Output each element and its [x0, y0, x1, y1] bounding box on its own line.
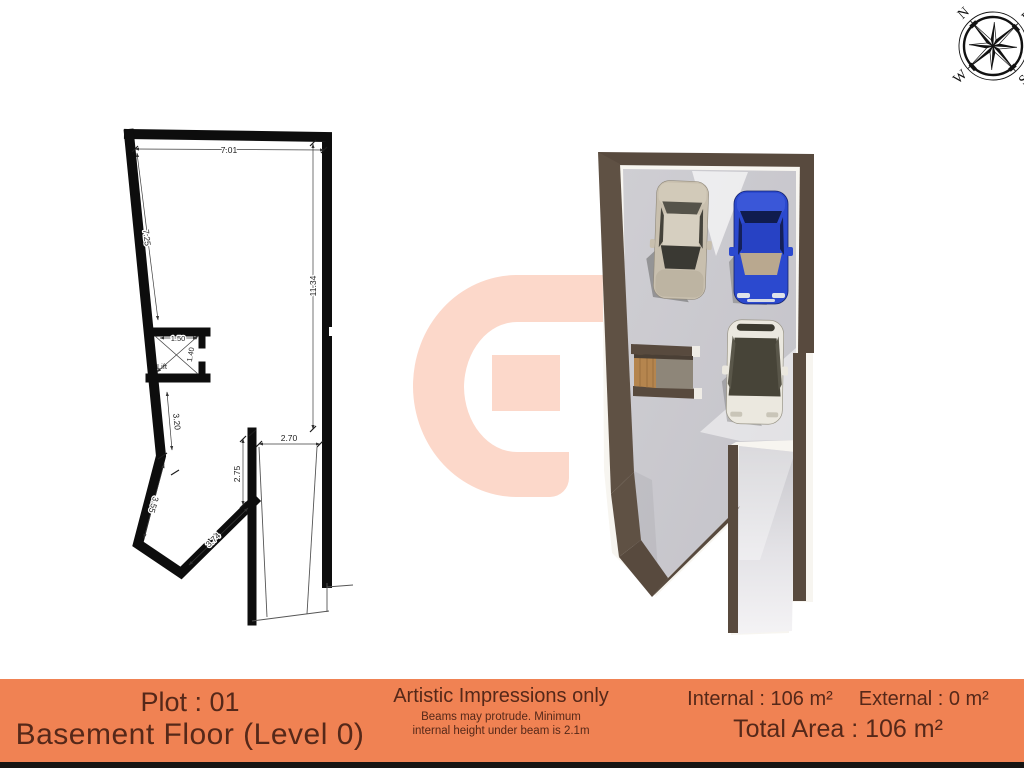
dim-top: 7.01	[221, 145, 238, 155]
car-rear-window	[662, 201, 702, 214]
wall-right-lower	[793, 353, 806, 601]
dim-ramp-h: 2.75	[232, 465, 242, 482]
plan-sheet: 7.01 7.25 11.34 1.50 1.40 Lift 3.20 3.55…	[0, 0, 1024, 768]
dim-lift-depth: 1.40	[185, 347, 196, 363]
compass-letter-e: E	[1019, 9, 1024, 26]
ramp-lines-2d	[252, 447, 353, 621]
compass-letter-s: S	[1016, 72, 1024, 88]
car-headlight	[737, 293, 750, 298]
compass-rose: N E S W	[921, 0, 1024, 121]
wall-right-upper	[798, 154, 814, 353]
dim-lift-width: 1.50	[171, 334, 186, 343]
lift-wall-cap-bottom	[694, 388, 702, 399]
car-white	[721, 319, 789, 426]
dim-wall-a: 3.20	[171, 413, 183, 431]
compass-letter-w: W	[951, 67, 971, 88]
lift-wall-cap-top	[692, 346, 700, 357]
car-headlight	[730, 412, 742, 417]
car-mirror	[707, 241, 712, 250]
car-glass-roof	[729, 338, 782, 397]
car-windshield	[740, 253, 782, 275]
dimension-lines	[135, 144, 324, 565]
car-roof	[742, 223, 780, 253]
floor-plan-2d: 7.01 7.25 11.34 1.50 1.40 Lift 3.20 3.55…	[129, 134, 353, 621]
lift-label: Lift	[157, 362, 168, 371]
car-mirror	[729, 247, 735, 256]
car-mirror	[782, 366, 788, 375]
lift-inner-floor	[656, 355, 693, 389]
car-rear-window	[740, 211, 782, 223]
car-windshield	[660, 245, 701, 269]
car-headlight	[772, 293, 785, 298]
car-roof	[663, 213, 700, 246]
render-3d	[598, 152, 814, 635]
dim-ramp-w: 2.70	[281, 433, 298, 443]
plan-walls	[129, 134, 327, 621]
car-rear-window	[737, 324, 775, 332]
wall-ramp-left	[728, 445, 738, 633]
wall-notch	[329, 327, 333, 336]
compass-letter-n: N	[955, 5, 973, 23]
dim-left: 7.25	[141, 229, 153, 247]
lift-3d	[631, 344, 702, 399]
car-grille	[747, 299, 775, 302]
car-headlight	[766, 412, 778, 417]
car-blue	[729, 191, 793, 305]
wall-top	[598, 152, 814, 167]
car-mirror	[787, 247, 793, 256]
car-mirror	[722, 365, 728, 374]
car-mirror	[650, 239, 655, 248]
dim-right: 11.34	[308, 275, 318, 296]
